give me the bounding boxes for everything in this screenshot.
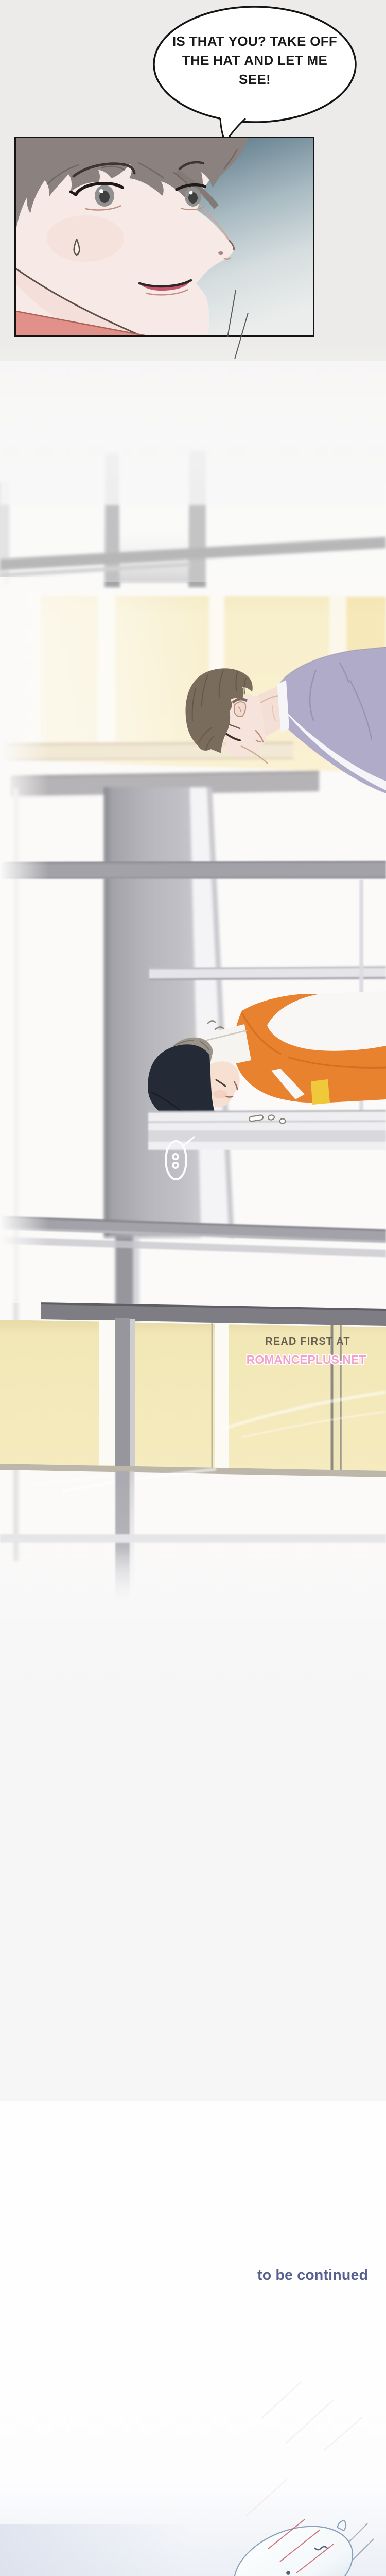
- svg-text:ROMANCEPLUS.NET: ROMANCEPLUS.NET: [247, 1353, 366, 1366]
- svg-text:READ FIRST AT: READ FIRST AT: [265, 1336, 350, 1347]
